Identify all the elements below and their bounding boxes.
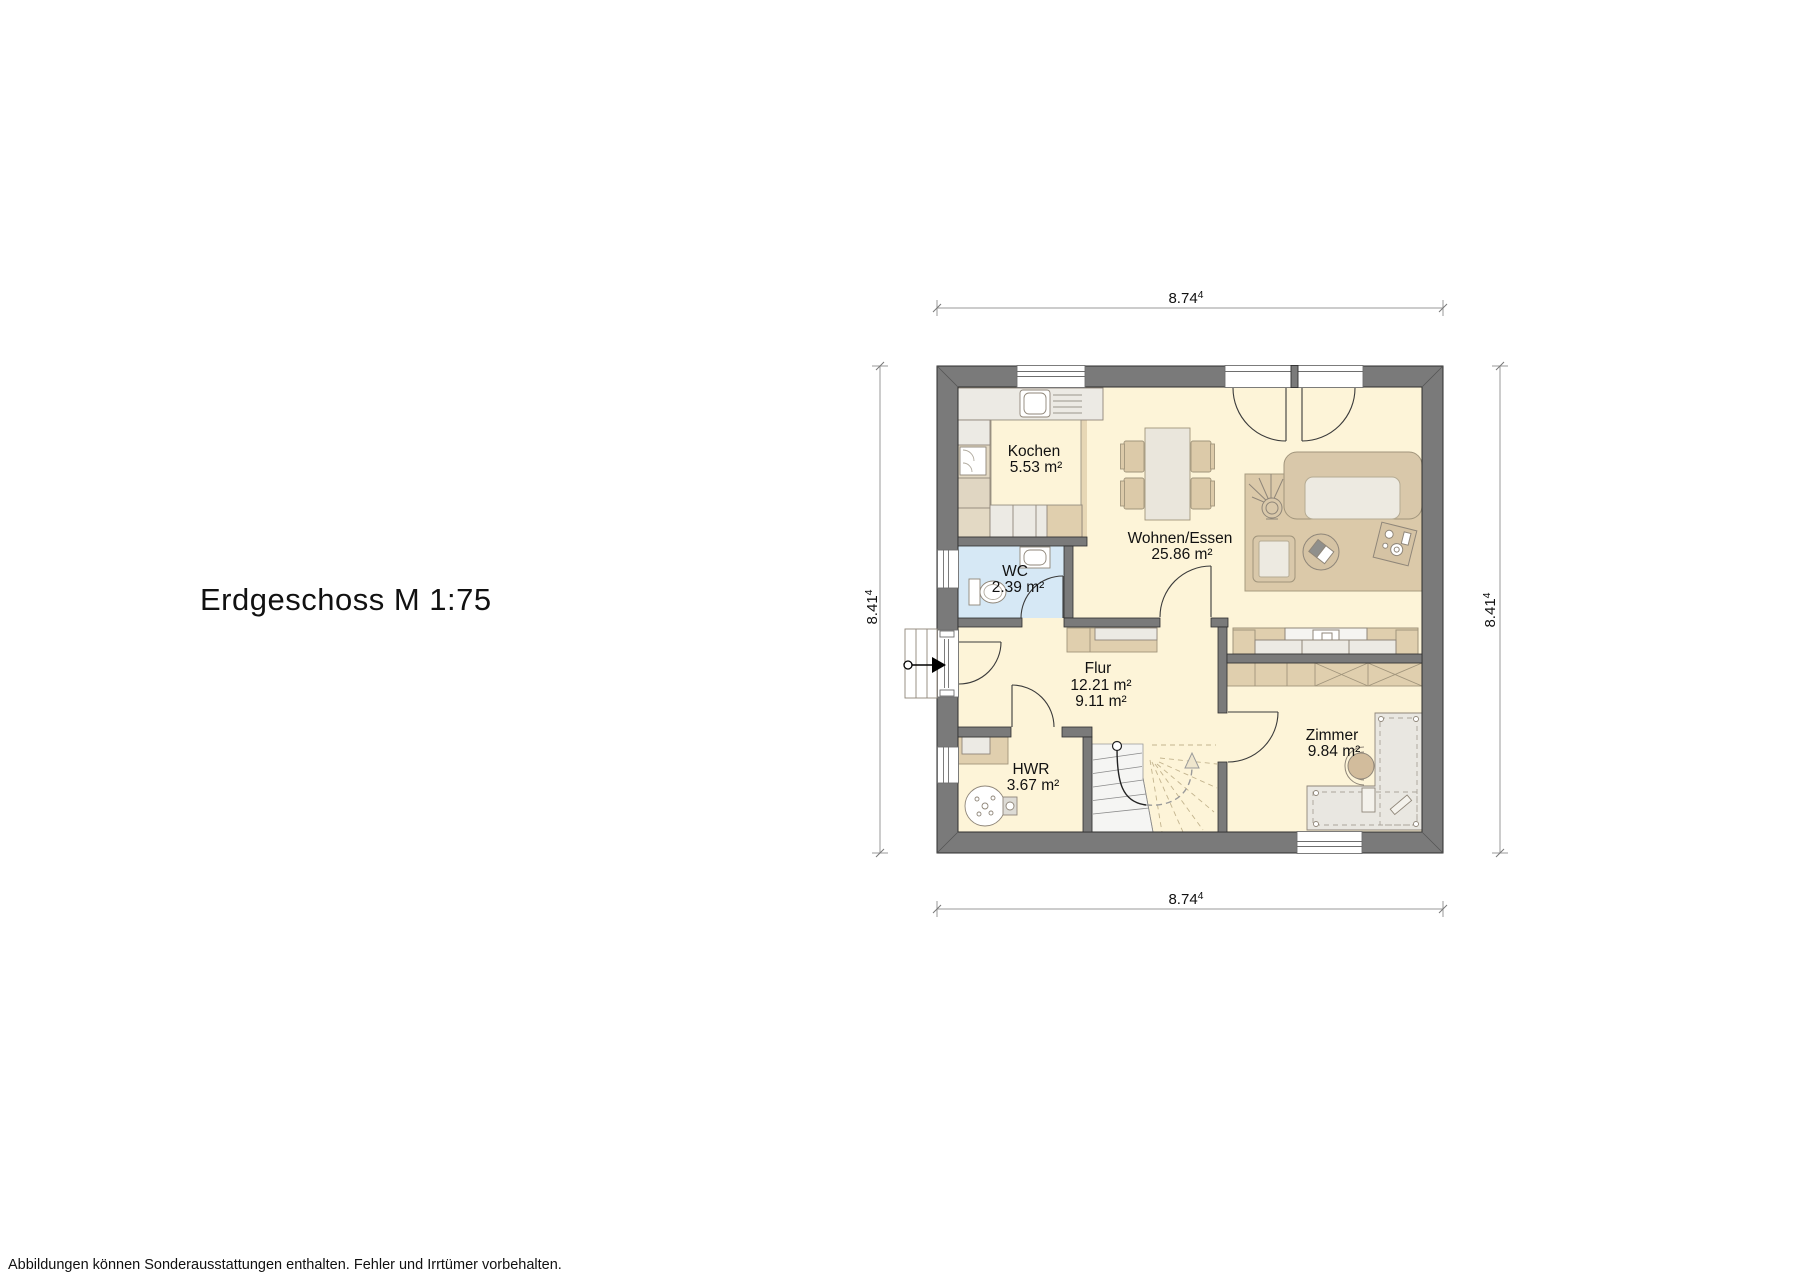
- floor-plan: 8.744 8.744 8.414 8.414: [0, 0, 1820, 1287]
- label-kochen-area: 5.53 m²: [1010, 459, 1063, 476]
- label-kochen: Kochen: [1008, 443, 1061, 460]
- kitchen-oven: [960, 447, 986, 475]
- hwr-cabinet: [958, 737, 1008, 764]
- toilet-tank: [969, 579, 980, 605]
- label-wohnen: Wohnen/Essen: [1128, 530, 1233, 547]
- hall-sideboard: [1067, 628, 1157, 652]
- window-kitchen: [1017, 366, 1085, 388]
- coffee-table: [1303, 534, 1339, 570]
- tv-sideboard: [1233, 628, 1418, 654]
- label-zimmer: Zimmer: [1306, 727, 1359, 744]
- label-flur-area1: 12.21 m²: [1070, 677, 1131, 694]
- label-flur-area2: 9.11 m²: [1075, 693, 1126, 710]
- dim-top: 8.744: [1168, 289, 1203, 307]
- dining-chair: [1191, 478, 1211, 509]
- armchair: [1253, 536, 1295, 582]
- page: Erdgeschoss M 1:75 8.744 8.744 8.414 8: [0, 0, 1820, 1287]
- disclaimer-text: Abbildungen können Sonderausstattungen e…: [8, 1257, 562, 1273]
- dining-chair: [1191, 441, 1211, 472]
- dining-chair: [1124, 441, 1144, 472]
- window-wc: [938, 550, 959, 588]
- dining-chair: [1124, 478, 1144, 509]
- dining-table: [1145, 428, 1190, 520]
- label-wohnen-area: 25.86 m²: [1151, 546, 1212, 563]
- wardrobe: [1227, 663, 1422, 686]
- door-terrace: [1225, 366, 1363, 388]
- kitchen-sink: [1024, 393, 1046, 414]
- label-hwr-area: 3.67 m²: [1007, 777, 1060, 794]
- dim-left: 8.414: [863, 589, 881, 624]
- label-flur: Flur: [1085, 660, 1112, 677]
- label-hwr: HWR: [1012, 761, 1049, 778]
- window-hwr: [938, 747, 959, 783]
- label-wc: WC: [1002, 563, 1028, 580]
- dim-bottom: 8.744: [1168, 890, 1203, 908]
- label-wc-area: 2.39 m²: [992, 579, 1045, 596]
- label-zimmer-area: 9.84 m²: [1308, 743, 1361, 760]
- desk-monitor: [1362, 788, 1375, 812]
- window-zimmer: [1297, 832, 1362, 854]
- dim-right: 8.414: [1481, 592, 1499, 627]
